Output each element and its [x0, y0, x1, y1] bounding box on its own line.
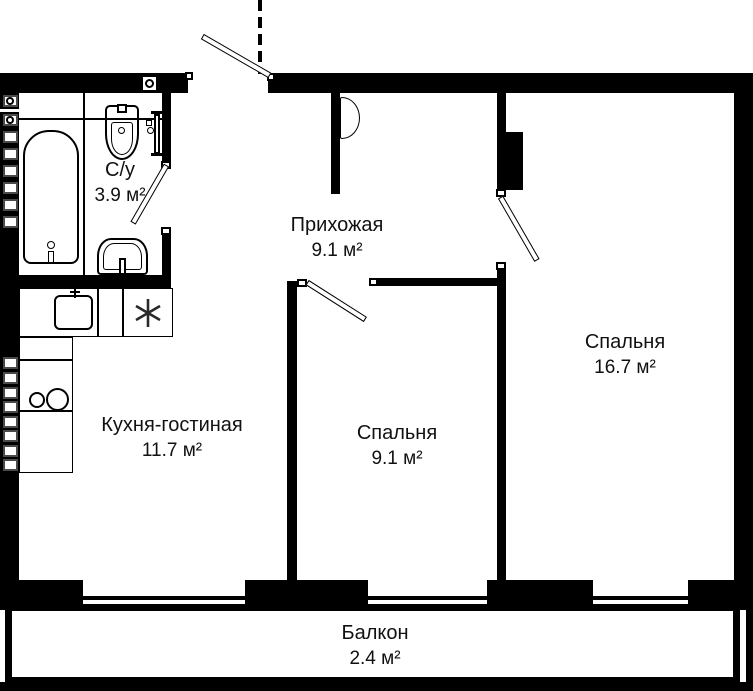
wall-hall-closet [331, 93, 340, 194]
wall-top-left [0, 73, 188, 93]
faucet-handle [70, 291, 80, 293]
wall-bottom-2 [245, 580, 368, 610]
shaft-block-icon [3, 372, 18, 384]
closet-door-icon [340, 97, 360, 139]
room-name: Спальня [545, 330, 705, 356]
towel-rail-icon [154, 114, 160, 154]
entrance-door-dashed-line [258, 0, 262, 74]
outer-right-strip [746, 610, 753, 691]
room-label-balcony: Балкон 2.4 м² [275, 621, 475, 671]
wall-bathroom-bottom [19, 275, 171, 288]
shaft-separator [0, 109, 19, 112]
bathtub-drain-icon [47, 241, 55, 249]
shaft-block-icon [3, 131, 18, 143]
wall-bottom-3 [487, 580, 593, 610]
wall-right [734, 73, 753, 580]
shaft-block-icon [3, 416, 18, 428]
shaft-block-icon [3, 430, 18, 442]
hob-burner-icon [46, 388, 69, 411]
room-area: 2.4 м² [275, 647, 475, 671]
room-label-bathroom: С/у 3.9 м² [60, 158, 180, 208]
wall-kitchen-bedroom [287, 281, 297, 580]
room-name: Балкон [275, 621, 475, 647]
fridge-asterisk-icon [132, 297, 164, 329]
shaft-block-icon [3, 148, 18, 160]
bedroom-small-door-leaf [306, 280, 367, 322]
room-area: 9.1 м² [317, 447, 477, 471]
floor-plan: С/у 3.9 м² Прихожая 9.1 м² Спальня 16.7 … [0, 0, 753, 691]
shaft-block-icon [3, 459, 18, 471]
window-bedroom-small [368, 596, 487, 600]
wall-bedrooms-divider-top [497, 93, 506, 132]
window-bedroom-large [593, 596, 688, 600]
shaft-block-icon [3, 182, 18, 194]
door-jamb [185, 72, 193, 80]
room-name: Прихожая [257, 213, 417, 239]
shaft-block-icon [3, 165, 18, 177]
wall-bottom-4 [688, 580, 753, 610]
shaft-block-icon [3, 357, 18, 369]
counter-divider [19, 410, 73, 412]
room-area: 9.1 м² [257, 239, 417, 263]
counter-divider [19, 359, 73, 361]
counter-divider [122, 288, 124, 337]
shaft-block-icon [3, 216, 18, 228]
wall-hall-bedroom-horizontal [372, 278, 501, 286]
faucet-icon [74, 288, 76, 298]
room-name: Кухня-гостиная [72, 413, 272, 439]
tap-icon [146, 120, 152, 126]
door-jamb [161, 227, 171, 235]
wall-top-right [268, 73, 753, 93]
toilet-drain-icon [118, 127, 125, 134]
door-jamb [369, 278, 378, 286]
room-label-kitchen-living: Кухня-гостиная 11.7 м² [72, 413, 272, 463]
washbasin-pedestal [119, 258, 126, 275]
room-area: 3.9 м² [60, 184, 180, 208]
room-area: 11.7 м² [72, 439, 272, 463]
toilet-flush-button-icon [117, 104, 127, 113]
wall-bottom-1 [0, 580, 83, 610]
room-name: Спальня [317, 421, 477, 447]
outer-bottom-strip [0, 682, 753, 691]
room-label-bedroom-small: Спальня 9.1 м² [317, 421, 477, 471]
bathtub-overflow-icon [48, 251, 54, 264]
shaft-block-icon [3, 401, 18, 413]
door-jamb [496, 262, 506, 270]
room-label-bedroom-large: Спальня 16.7 м² [545, 330, 705, 380]
wardrobe-shaft-block [497, 132, 523, 190]
wall-bathroom-right-upper [162, 93, 171, 163]
pipe-icon [6, 116, 14, 124]
shaft-block-icon [3, 445, 18, 457]
wall-bathroom-right-lower [162, 233, 171, 277]
bathroom-guide-line [19, 118, 162, 120]
towel-rail-tick [151, 153, 163, 156]
bedroom-large-door-leaf [498, 196, 540, 262]
hob-burner-icon [29, 392, 45, 408]
shaft-block-icon [3, 387, 18, 399]
counter-divider [97, 288, 99, 337]
shaft-block-icon [3, 199, 18, 211]
pipe-icon [6, 97, 14, 105]
window-kitchen [83, 596, 245, 600]
vent-pipe-icon [145, 79, 154, 88]
tap-handle-icon [147, 127, 154, 134]
wall-bedrooms-divider-bottom [497, 270, 506, 580]
room-area: 16.7 м² [545, 356, 705, 380]
kitchen-sink-icon [54, 295, 93, 330]
room-label-hallway: Прихожая 9.1 м² [257, 213, 417, 263]
room-name: С/у [60, 158, 180, 184]
